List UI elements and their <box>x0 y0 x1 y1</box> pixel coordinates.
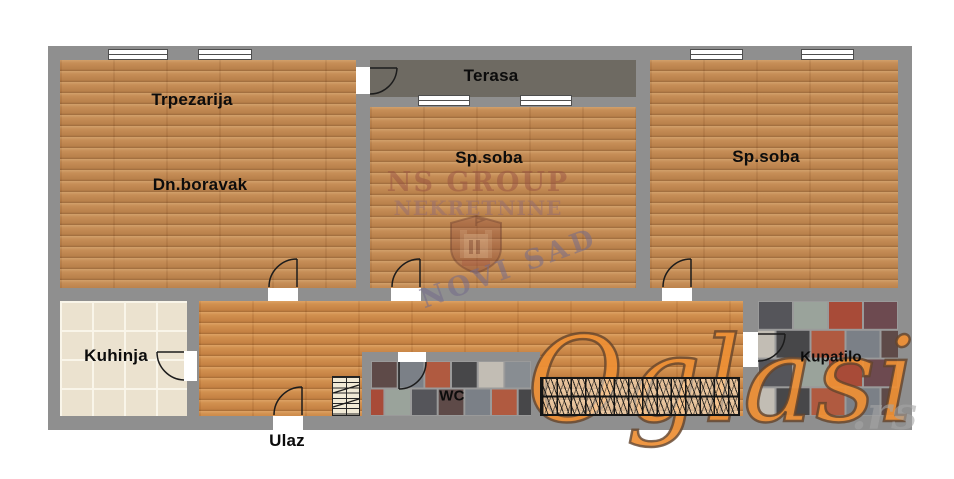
bathroom-door-opening <box>743 332 758 367</box>
closet-symbol <box>540 377 740 416</box>
kitchen-door-opening <box>184 351 197 381</box>
window <box>520 95 572 106</box>
label-wc: WC <box>439 388 464 405</box>
agency-shield-icon <box>449 214 503 274</box>
living-door-opening <box>268 288 298 301</box>
window <box>801 49 854 60</box>
stairs-symbol <box>332 376 360 416</box>
label-bedroom2: Sp.soba <box>732 147 800 167</box>
bedroom2-door-opening <box>662 288 692 301</box>
label-kitchen: Kuhinja <box>84 346 148 366</box>
window <box>198 49 252 60</box>
label-entrance: Ulaz <box>269 431 305 451</box>
room-bedroom1-floor <box>370 107 636 288</box>
wc-door-opening <box>398 352 426 362</box>
label-living1: Trpezarija <box>151 90 232 110</box>
window <box>418 95 470 106</box>
label-terrace: Terasa <box>464 66 519 86</box>
label-bedroom1: Sp.soba <box>455 148 523 168</box>
label-living2: Dn.boravak <box>153 175 248 195</box>
terrace-door-opening <box>356 67 370 94</box>
floorplan-canvas: Trpezarija Dn.boravak Terasa Sp.soba Sp.… <box>0 0 954 479</box>
window <box>108 49 168 60</box>
room-bedroom2-floor <box>650 60 898 288</box>
entrance-door-opening <box>273 416 303 430</box>
window <box>690 49 743 60</box>
bedroom1-door-opening <box>391 288 421 301</box>
label-bathroom: Kupatilo <box>800 349 862 366</box>
